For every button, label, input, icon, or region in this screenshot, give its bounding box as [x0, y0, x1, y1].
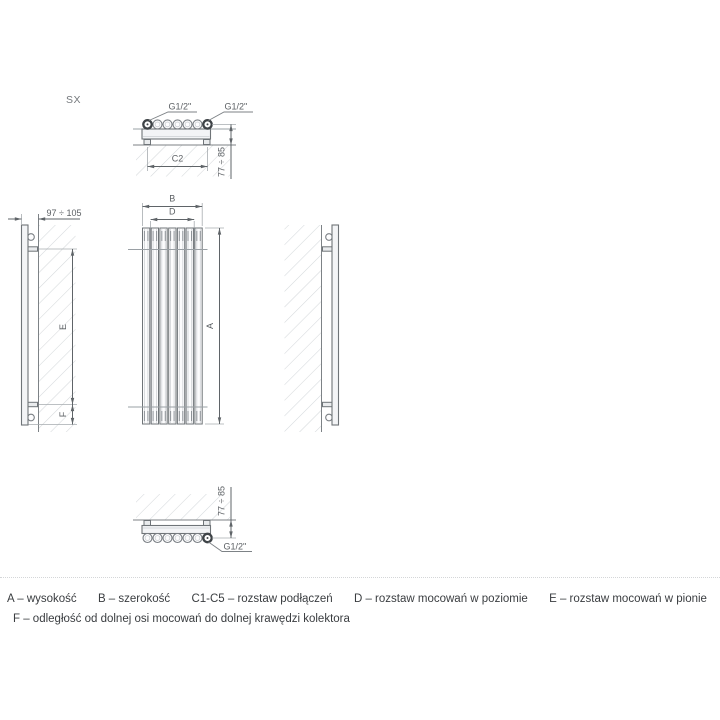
- tube: [177, 228, 184, 424]
- tube: [143, 228, 150, 424]
- tube: [195, 228, 202, 424]
- side-view-left: 97 ÷ 105 E F: [8, 208, 81, 432]
- model-variant-label: SX: [66, 94, 81, 106]
- tube-circles: [143, 534, 202, 543]
- radiator-profile: [332, 225, 339, 425]
- dim-label-g12-bottom: G1/2": [224, 542, 247, 552]
- legend-item-d: D – rozstaw mocowań w poziomie: [354, 592, 528, 606]
- tube: [169, 228, 176, 424]
- legend-row-1: A – wysokość B – szerokość C1-C5 – rozst…: [7, 592, 707, 606]
- front-view: B D: [128, 194, 224, 425]
- dim-label-depth-top: 77 ÷ 85: [217, 147, 227, 177]
- tube: [160, 228, 167, 424]
- collector-bar: [142, 129, 211, 139]
- top-connection-leaders: [149, 112, 253, 121]
- dim-label-f: F: [58, 411, 68, 417]
- mounting-bracket: [204, 140, 211, 145]
- dim-label-e: E: [58, 324, 68, 330]
- connection-fitting-right: [203, 120, 211, 128]
- legend-row-2: F – odległość od dolnej osi mocowań do d…: [13, 612, 350, 626]
- mounting-bracket: [204, 521, 211, 526]
- connection-fitting-left: [143, 120, 151, 128]
- air-vent-circle: [28, 234, 35, 241]
- dim-label-b: B: [169, 194, 175, 204]
- mounting-bracket: [323, 402, 333, 406]
- side-view-right: [285, 225, 339, 432]
- radiator-profile: [22, 225, 29, 425]
- mounting-bracket: [144, 140, 151, 145]
- tube: [186, 228, 193, 424]
- air-vent-circle: [326, 234, 333, 241]
- radiator-spec-diagram: SX: [0, 0, 720, 720]
- mounting-bracket: [28, 402, 38, 406]
- collector-bar: [142, 526, 211, 534]
- air-vent-circle: [326, 414, 333, 421]
- dim-label-d: D: [169, 207, 176, 217]
- bottom-view: 77 ÷ 85 G1/2": [133, 486, 252, 551]
- legend-separator: [0, 577, 720, 578]
- radiator-tubes: [143, 228, 203, 424]
- dim-label-c2: C2: [172, 154, 184, 164]
- connection-fitting-bottom: [203, 534, 211, 542]
- tube: [151, 228, 158, 424]
- dim-label-wall-distance: 97 ÷ 105: [47, 208, 82, 218]
- tube-circles: [153, 120, 202, 129]
- dim-label-g12-top-right: G1/2": [225, 102, 248, 112]
- dim-label-a: A: [205, 323, 215, 329]
- technical-drawing: SX: [0, 0, 360, 580]
- dim-label-g12-top-left: G1/2": [169, 102, 192, 112]
- dim-label-depth-bottom: 77 ÷ 85: [217, 486, 227, 516]
- mounting-bracket: [323, 247, 333, 251]
- legend-item-a: A – wysokość: [7, 592, 77, 606]
- mounting-bracket: [28, 247, 38, 251]
- legend-item-b: B – szerokość: [98, 592, 170, 606]
- wall-hatch: [285, 225, 322, 432]
- legend-item-e: E – rozstaw mocowań w pionie: [549, 592, 707, 606]
- mounting-bracket: [144, 521, 151, 526]
- legend-item-c: C1-C5 – rozstaw podłączeń: [191, 592, 332, 606]
- wall-hatch: [39, 225, 76, 432]
- air-vent-circle: [28, 414, 35, 421]
- top-view: G1/2" G1/2" C2 77 ÷ 85: [133, 102, 253, 180]
- legend-item-f: F – odległość od dolnej osi mocowań do d…: [13, 613, 350, 625]
